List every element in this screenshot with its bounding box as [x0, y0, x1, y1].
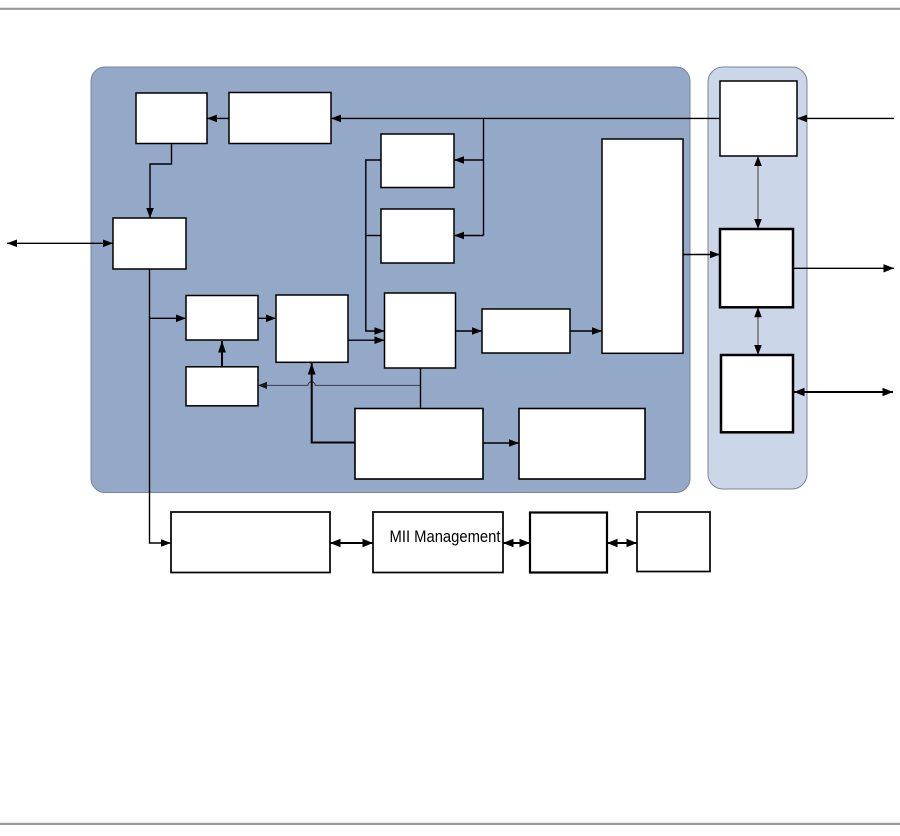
svg-text:MII Management: MII Management [390, 528, 501, 546]
